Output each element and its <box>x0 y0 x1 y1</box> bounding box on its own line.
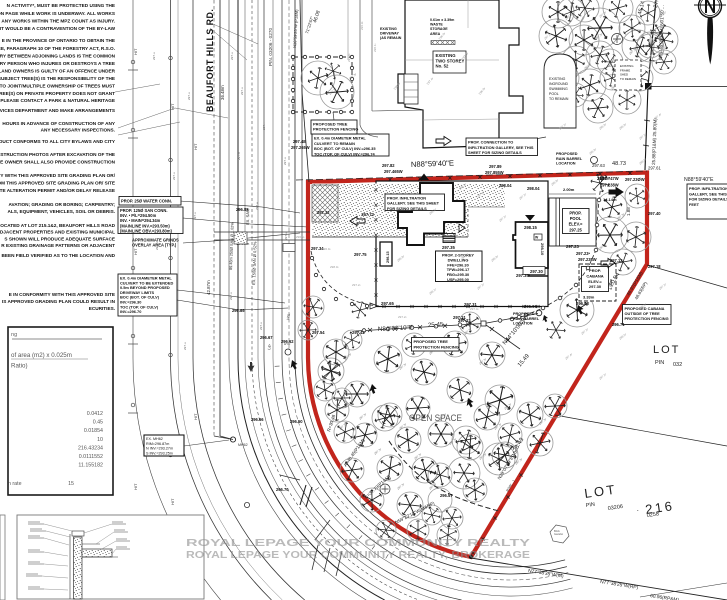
svg-text:298.0•: 298.0• <box>330 265 339 269</box>
svg-text:PROP.: PROP. <box>569 211 581 216</box>
svg-text:032: 032 <box>673 362 682 368</box>
svg-text:PROP. 25Ø WATER CONN.: PROP. 25Ø WATER CONN. <box>121 199 172 204</box>
svg-text:ALS, EQUIPMENT, VEHICLES, SOIL: ALS, EQUIPMENT, VEHICLES, SOIL OR DEBRIS… <box>8 209 115 214</box>
svg-text:297.82: 297.82 <box>382 163 395 168</box>
svg-text:E SUBJECT TREE(S) IS THE RESPO: E SUBJECT TREE(S) IS THE RESPONSIBILITY … <box>0 76 115 81</box>
svg-text:LOCATION: LOCATION <box>556 162 576 166</box>
svg-text:INV.=296.70: INV.=296.70 <box>120 309 141 314</box>
svg-text:297.21: 297.21 <box>458 318 471 323</box>
svg-text:ECURITIES.: ECURITIES. <box>89 306 115 311</box>
svg-text:297.••: 297.•• <box>259 322 263 330</box>
svg-text:O ADJACENT PROPERTIES AND EXIS: O ADJACENT PROPERTIES AND EXISTING MUNIC… <box>0 230 115 235</box>
svg-text:0.01854: 0.01854 <box>84 428 103 434</box>
svg-text:EXISTING: EXISTING <box>436 53 457 58</box>
svg-text:S INV.=293.25m: S INV.=293.25m <box>146 451 173 455</box>
svg-text:TOC (TOP, OF CULV) INV.=296.74: TOC (TOP, OF CULV) INV.=296.74 <box>314 151 375 156</box>
svg-text:ELEV.=: ELEV.= <box>588 279 602 284</box>
svg-text:EE, PARAGRAPH 10 OF THE FOREST: EE, PARAGRAPH 10 OF THE FORESTRY ACT, R.… <box>0 46 115 51</box>
svg-text:MH62: MH62 <box>238 443 248 447</box>
svg-text:TWO STOREY: TWO STOREY <box>436 58 465 63</box>
svg-text:SITE ALTERATION PERMIT AND/OR: SITE ALTERATION PERMIT AND/OR DELAY RELE… <box>0 188 115 193</box>
svg-text:POOL: POOL <box>549 92 559 96</box>
svg-text:297.465W: 297.465W <box>384 169 403 174</box>
svg-text:SHEET FOR SIZING DETAILS: SHEET FOR SIZING DETAILS <box>468 150 522 155</box>
svg-text:297.54: 297.54 <box>312 330 325 335</box>
svg-text:14.14m: 14.14m <box>603 197 617 202</box>
svg-text:PROP.: PROP. <box>589 268 601 273</box>
svg-text:297.2•: 297.2• <box>352 283 361 287</box>
svg-text:N88°59'40"E: N88°59'40"E <box>684 177 714 183</box>
svg-text:ONSTRUCTION PHOTOS AFTER EXCAV: ONSTRUCTION PHOTOS AFTER EXCAVATION OF T… <box>0 152 115 157</box>
svg-text:N INV.=293.27m: N INV.=293.27m <box>146 447 173 451</box>
svg-text:n rate: n rate <box>8 481 22 487</box>
svg-text:298.15: 298.15 <box>386 251 390 263</box>
svg-text:POOL: POOL <box>570 216 582 221</box>
svg-text:10: 10 <box>97 437 103 443</box>
svg-text:297.30: 297.30 <box>530 269 543 274</box>
svg-text:No. 52: No. 52 <box>436 64 450 69</box>
svg-text:H/T: H/T <box>133 48 138 55</box>
svg-text:EX. MH62: EX. MH62 <box>146 437 163 441</box>
svg-text:296.9•: 296.9• <box>322 247 331 251</box>
svg-text:H/T: H/T <box>193 413 198 420</box>
svg-text:297.••: 297.•• <box>283 157 287 165</box>
svg-text:298.04: 298.04 <box>499 183 512 188</box>
svg-text:CT TO JOINT/MULTIPLE OWNERSHIP: CT TO JOINT/MULTIPLE OWNERSHIP OF TREES … <box>0 84 115 89</box>
svg-text:48.73: 48.73 <box>612 161 626 167</box>
svg-text:216.43234: 216.43234 <box>78 445 103 451</box>
svg-text:297.89: 297.89 <box>489 164 502 169</box>
svg-text:of area (m2) x 0.025m: of area (m2) x 0.025m <box>11 352 72 359</box>
svg-text:0.0412: 0.0412 <box>87 411 103 417</box>
svg-text:OM THIS APPROVED SITE GRADING: OM THIS APPROVED SITE GRADING PLAN OR/ S… <box>0 181 115 186</box>
svg-text:H/T: H/T <box>133 248 138 255</box>
svg-text:UNDARY BETWEEN ADJOINING LANDS: UNDARY BETWEEN ADJOINING LANDS IS THE CO… <box>0 54 116 59</box>
svg-text:PROPOSED TREE: PROPOSED TREE <box>414 339 449 344</box>
svg-text:297.23•: 297.23• <box>576 251 591 256</box>
svg-text:296.71: 296.71 <box>612 322 625 327</box>
svg-text:298.04: 298.04 <box>527 186 540 191</box>
svg-text:USF=295.00: USF=295.00 <box>447 277 469 282</box>
svg-text:PROP. CONNECTION TO: PROP. CONNECTION TO <box>468 140 513 145</box>
svg-text:296.67: 296.67 <box>260 335 273 340</box>
svg-text:S BEEN FIELD VERIFIED AS TO TH: S BEEN FIELD VERIFIED AS TO THE LOCATION… <box>0 253 116 258</box>
svg-text:SWIMMING: SWIMMING <box>549 87 568 91</box>
svg-text:297.42: 297.42 <box>352 330 365 335</box>
svg-text:(AS REMAIN: (AS REMAIN <box>380 36 402 40</box>
svg-text:H/T: H/T <box>170 498 175 505</box>
svg-text:PIN: PIN <box>655 360 664 366</box>
svg-text:(MAINLINE OBV.=293.80m): (MAINLINE OBV.=293.80m) <box>120 228 172 233</box>
svg-text:D. THE OWNER SHALL ALSO PROVID: D. THE OWNER SHALL ALSO PROVIDE CONSTRUC… <box>0 160 116 165</box>
svg-text:298.10: 298.10 <box>540 243 545 256</box>
svg-text:TE LAND OWNERS IS GUILTY OF AN: TE LAND OWNERS IS GUILTY OF AN OFFENCE U… <box>0 69 116 74</box>
svg-text:296.85: 296.85 <box>232 308 245 313</box>
svg-text:RAIN BARREL: RAIN BARREL <box>556 157 583 161</box>
svg-text:Gazebo: Gazebo <box>554 532 564 536</box>
svg-text:INGROUND: INGROUND <box>549 82 569 86</box>
svg-text:297.747W: 297.747W <box>600 176 619 181</box>
svg-text:PROTECTION FENCING: PROTECTION FENCING <box>625 316 669 321</box>
svg-text:42.87m: 42.87m <box>206 280 211 295</box>
svg-text:297.••: 297.•• <box>284 232 288 240</box>
svg-text:297.4•: 297.4• <box>347 53 351 62</box>
svg-text:297.••: 297.•• <box>229 292 233 300</box>
svg-text:297.••: 297.•• <box>237 152 241 160</box>
svg-text:297.238W: 297.238W <box>600 183 619 188</box>
svg-text:296.96: 296.96 <box>524 304 537 309</box>
svg-text:297.••: 297.•• <box>152 52 156 60</box>
svg-text:297.4•: 297.4• <box>470 307 479 311</box>
svg-text:297.265W: 297.265W <box>291 145 310 150</box>
svg-text:DRIVEWAY: DRIVEWAY <box>380 32 399 36</box>
svg-text:0.0111552: 0.0111552 <box>79 454 103 460</box>
svg-text:15: 15 <box>68 481 74 487</box>
svg-text:H/T: H/T <box>133 483 138 490</box>
svg-text:CULVERT TO REMAIN: CULVERT TO REMAIN <box>314 141 355 146</box>
svg-text:297.40: 297.40 <box>648 211 661 216</box>
svg-text:ng: ng <box>11 332 17 338</box>
svg-text:1.88: 1.88 <box>626 207 631 216</box>
svg-text:297.18: 297.18 <box>648 264 661 269</box>
svg-text:297.35: 297.35 <box>516 273 529 278</box>
svg-text:EXISTING: EXISTING <box>549 77 566 81</box>
svg-text:297.12: 297.12 <box>610 258 623 263</box>
svg-text:2.00m: 2.00m <box>563 187 575 192</box>
svg-text:ROYAL LEPAGE YOUR COMMUNITY RE: ROYAL LEPAGE YOUR COMMUNITY REALTY, BROK… <box>186 549 530 561</box>
svg-text:297.23ØW: 297.23ØW <box>625 177 645 182</box>
svg-text:297.••: 297.•• <box>262 122 266 130</box>
svg-text:296.9•: 296.9• <box>296 235 305 239</box>
svg-text:FEET: FEET <box>689 202 700 207</box>
svg-text:AVATION; GRADING OR BORING; CA: AVATION; GRADING OR BORING; CARPENTRY; <box>8 202 115 207</box>
svg-text:ELEV.=: ELEV.= <box>569 222 583 227</box>
svg-text:SERVICES DEPARTMENT AND MAKE A: SERVICES DEPARTMENT AND MAKE ARRANGEMENT… <box>0 108 115 113</box>
svg-text:ANY NECESSARY INSPECTIONS.: ANY NECESSARY INSPECTIONS. <box>41 128 115 133</box>
svg-text:ANY WORKS WITHIN THE MPZ COUNT: ANY WORKS WITHIN THE MPZ COUNT AS INJURY… <box>1 19 115 24</box>
svg-text:PROTECTION FENCING: PROTECTION FENCING <box>313 127 358 132</box>
svg-text:297.238W: 297.238W <box>578 257 597 262</box>
svg-text:297.••: 297.•• <box>240 87 244 95</box>
svg-text:PIN: PIN <box>585 502 595 509</box>
svg-text:IS APPROVED GRADING PLAN COULD: IS APPROVED GRADING PLAN COULD RESULT IN <box>2 299 116 304</box>
svg-text:0.45: 0.45 <box>93 420 103 426</box>
svg-text:RTY WITH THIS APPROVED SITE GR: RTY WITH THIS APPROVED SITE GRADING PLAN… <box>0 173 116 178</box>
svg-text:N88°59'40"E: N88°59'40"E <box>411 159 454 169</box>
svg-text:297.••: 297.•• <box>172 172 176 180</box>
svg-text:E IN THE PROVINCE OF ONTARIO T: E IN THE PROVINCE OF ONTARIO TO OBTAIN T… <box>2 38 115 43</box>
svg-text:S SHOWN WILL PRODUCE ADEQUATE: S SHOWN WILL PRODUCE ADEQUATE SURFACE <box>4 236 115 241</box>
svg-text:INFILTRATION GALLERY, SEE THIS: INFILTRATION GALLERY, SEE THIS <box>468 145 534 150</box>
svg-text:TION PAGE WHILE WORK IS UNDERW: TION PAGE WHILE WORK IS UNDERWAY. ALL WO… <box>0 11 115 16</box>
svg-text:297.2•: 297.2• <box>398 315 407 319</box>
svg-text:PROPOSED: PROPOSED <box>513 312 535 316</box>
svg-text:297.25: 297.25 <box>569 227 582 232</box>
svg-text:RIM=296.87m: RIM=296.87m <box>146 442 169 446</box>
svg-text:BEAUFORT HILLS RD.: BEAUFORT HILLS RD. <box>205 9 215 112</box>
svg-text:FOR SIZING DETAILS: FOR SIZING DETAILS <box>387 206 427 211</box>
svg-text:296.70: 296.70 <box>276 487 289 492</box>
svg-text:298.15: 298.15 <box>524 225 537 230</box>
svg-text:297.30: 297.30 <box>589 284 602 289</box>
svg-text:297.72: 297.72 <box>361 212 374 217</box>
svg-text:PROP. INFILTRATION: PROP. INFILTRATION <box>689 186 727 191</box>
svg-text:25.45: 25.45 <box>428 321 444 329</box>
svg-text:OCATED AT LOT 215.1&2, BEAUFOR: OCATED AT LOT 215.1&2, BEAUFORT HILLS RO… <box>0 223 115 228</box>
svg-text:297.••: 297.•• <box>155 242 159 250</box>
svg-text:297.65: 297.65 <box>381 301 394 306</box>
svg-text:E IN CONFORMITY WITH THIS APPR: E IN CONFORMITY WITH THIS APPROVED SITE <box>9 292 115 297</box>
svg-text:298.1•: 298.1• <box>373 43 377 52</box>
svg-text:PROPOSED: PROPOSED <box>556 152 578 156</box>
svg-text:H/T: H/T <box>193 143 198 150</box>
svg-text:DUCT CONFORMS TO ALL CITY BYLA: DUCT CONFORMS TO ALL CITY BYLAWS AND CIT… <box>0 139 116 144</box>
svg-text:S. PLEASE CONTACT A PARK & NAT: S. PLEASE CONTACT A PARK & NATURAL HERIT… <box>0 98 115 103</box>
svg-text:297.••: 297.•• <box>193 212 197 220</box>
svg-text:36.48m: 36.48m <box>220 85 225 100</box>
svg-text:297.••: 297.•• <box>255 202 259 210</box>
svg-text:297.32: 297.32 <box>317 210 330 215</box>
svg-text:EX. 0.4m DIAMETER METAL: EX. 0.4m DIAMETER METAL <box>314 136 366 141</box>
svg-text:D EVERY PERSON WHO INJURES OR: D EVERY PERSON WHO INJURES OR DESTROYS A… <box>0 61 115 66</box>
svg-text:297.••: 297.•• <box>187 92 191 100</box>
svg-text:BOC (BOT. OF CULV) INV.=296.35: BOC (BOT. OF CULV) INV.=296.35 <box>314 146 376 151</box>
svg-text:296.9•: 296.9• <box>360 21 364 30</box>
svg-text:OPEN SPACE: OPEN SPACE <box>409 413 462 424</box>
svg-text:RMIT WOULD BE A CONTRAVENTION: RMIT WOULD BE A CONTRAVENTION OF THE BY-… <box>0 26 116 31</box>
svg-text:STORAGE: STORAGE <box>430 27 448 31</box>
svg-text:297.35: 297.35 <box>442 245 455 250</box>
svg-text:FOR SIZING DETAILS: FOR SIZING DETAILS <box>689 197 727 202</box>
svg-text:PROTECTION FENCING: PROTECTION FENCING <box>414 344 459 349</box>
svg-text:297.23: 297.23 <box>566 244 579 249</box>
svg-text:TO REMAIN: TO REMAIN <box>620 77 636 81</box>
svg-text:296.57: 296.57 <box>440 493 453 498</box>
svg-text:N ACTIVITY*, MUST BE PROTECTED: N ACTIVITY*, MUST BE PROTECTED USING THE <box>7 3 115 8</box>
svg-text:296.50: 296.50 <box>290 419 303 424</box>
svg-text:297.4E: 297.4E <box>293 139 306 144</box>
svg-text:Ratio): Ratio) <box>11 363 28 370</box>
svg-text:TREE(S) ON PRIVATE PROPERTY DO: TREE(S) ON PRIVATE PROPERTY DOES NOT GRA… <box>0 91 115 96</box>
svg-text:EXISTING: EXISTING <box>380 27 397 31</box>
svg-text:297.••: 297.•• <box>183 342 187 350</box>
svg-text:297.••: 297.•• <box>230 52 234 60</box>
svg-text:WASTE: WASTE <box>430 23 443 27</box>
svg-text:3.33m: 3.33m <box>583 295 595 300</box>
svg-text:TO REMAIN: TO REMAIN <box>549 97 569 101</box>
svg-text:GALLERY, SEE THIS: GALLERY, SEE THIS <box>689 191 727 196</box>
svg-text:297.75: 297.75 <box>354 252 367 257</box>
svg-text:HOURS IN ADVANCE OF CONSTRUCTI: HOURS IN ADVANCE OF CONSTRUCTION OF ANY <box>2 121 115 126</box>
svg-text:EX. SAN: EX. SAN <box>245 209 250 225</box>
svg-text:PIN. 03206 - 0270: PIN. 03206 - 0270 <box>268 28 273 66</box>
svg-text:CABANA: CABANA <box>586 273 603 278</box>
svg-text:0.61m x 3.39m: 0.61m x 3.39m <box>430 18 454 22</box>
svg-text:R EXISTING DRAINAGE PATTERNS O: R EXISTING DRAINAGE PATTERNS OR ADJACENT <box>1 243 115 248</box>
svg-text:ROYAL LEPAGE YOUR COMMUNITY RE: ROYAL LEPAGE YOUR COMMUNITY REALTY <box>186 537 530 549</box>
svg-text:297.855W: 297.855W <box>485 170 504 175</box>
svg-text:296.66: 296.66 <box>251 417 264 422</box>
svg-text:HYD: HYD <box>284 342 291 346</box>
svg-text:11.155182: 11.155182 <box>78 463 103 469</box>
svg-text:LOT: LOT <box>653 344 680 356</box>
svg-text:297.61: 297.61 <box>648 166 661 171</box>
